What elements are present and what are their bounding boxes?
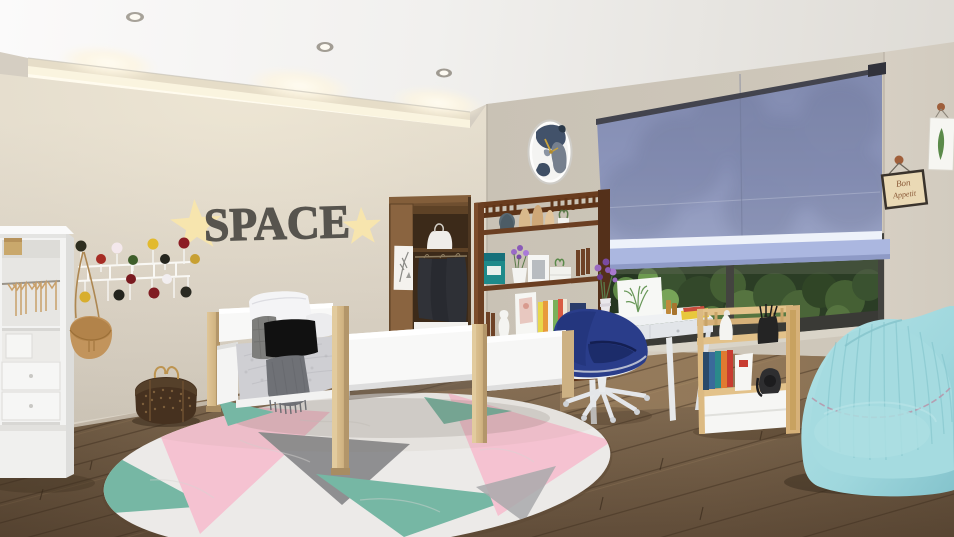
svg-text:Bon: Bon (895, 177, 911, 189)
svg-text:SPACE: SPACE (203, 196, 350, 252)
